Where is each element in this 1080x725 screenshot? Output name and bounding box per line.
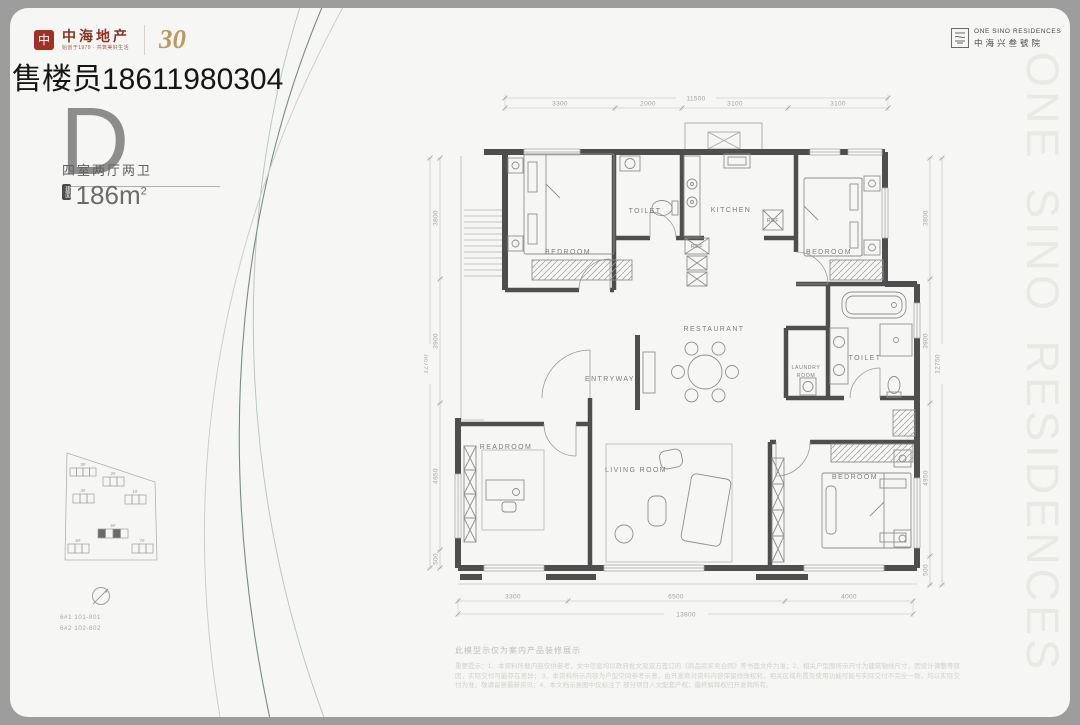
brand-logo-left: 中 中海地产 始创于1979 · 共筑美好生活 30 xyxy=(34,24,186,55)
dim-top-2: 2000 xyxy=(640,101,656,108)
residence-seal-icon xyxy=(951,28,969,48)
sales-watermark: 售楼员18611980304 xyxy=(12,54,283,98)
building-2-label: 2# xyxy=(110,471,116,476)
residence-name-en: ONE SINO RESIDENCES xyxy=(974,28,1061,35)
bed-2 xyxy=(804,176,880,256)
wardrobe-3 xyxy=(831,444,913,462)
room-label-ref1: REF xyxy=(767,218,779,224)
room-label-laundry1: LAUNDRY xyxy=(792,365,821,371)
site-plan: 3# 2# 4# 1# 6# 5# 7# xyxy=(58,452,170,570)
brand-tagline: 始创于1979 · 共筑美好生活 xyxy=(62,44,130,51)
dim-top-3: 3100 xyxy=(727,101,743,108)
room-label-bedroom2: BEDROOM xyxy=(806,249,852,256)
brand-seal-icon: 中 xyxy=(34,30,54,50)
area-sup: 2 xyxy=(141,185,147,197)
room-label-readroom: READROOM xyxy=(480,444,532,451)
terrace-piers xyxy=(460,574,808,580)
room-label-ref2: REF xyxy=(691,244,703,250)
building-2 xyxy=(103,477,124,486)
dim-left-2: 3900 xyxy=(433,333,440,349)
brochure-card: 中 中海地产 始创于1979 · 共筑美好生活 30 售楼员1861198030… xyxy=(10,8,1070,717)
brand-divider xyxy=(144,25,145,55)
dim-right-3: 4950 xyxy=(923,470,930,486)
disclaimer: 此模型示仅为案内产品装修展示 重要提示：1、本资料所载内容仅供参考，文中信息均以… xyxy=(455,645,960,691)
brand-logo-right: ONE SINO RESIDENCES 中海兴叁號院 xyxy=(951,28,1061,49)
dining-set xyxy=(672,342,739,402)
wardrobe-2 xyxy=(830,260,883,280)
side-watermark-text: ONE SINO RESIDENCES xyxy=(1018,52,1066,712)
dim-left-total: 12750 xyxy=(424,354,430,374)
anniversary-30-icon: 30 xyxy=(159,24,186,55)
building-5-label: 5# xyxy=(75,538,81,543)
unit-area: 建面 186m2 xyxy=(62,180,147,211)
wardrobe-1 xyxy=(532,260,632,280)
floor-plan: BEDROOM TOILET KITCHEN REF REF BEDROOM L… xyxy=(424,88,959,653)
building-4 xyxy=(73,494,94,503)
room-label-toilet2: TOILET xyxy=(849,355,882,362)
furniture xyxy=(464,154,915,562)
elevator-shaft xyxy=(685,123,762,153)
unit-note-2: 6#2 102-802 xyxy=(60,623,101,634)
building-1 xyxy=(125,495,146,504)
living-furniture xyxy=(606,444,732,562)
dim-right-4: 500 xyxy=(923,564,930,576)
room-label-restaurant: RESTAURANT xyxy=(684,326,745,333)
bath-fixtures xyxy=(830,292,912,397)
unit-notes: 6#1 101-801 6#2 102-802 xyxy=(60,612,101,634)
unit-note-1: 6#1 101-801 xyxy=(60,612,101,623)
disclaimer-title: 此模型示仅为案内产品装修展示 xyxy=(455,645,960,656)
area-badge: 建面 xyxy=(62,184,71,200)
dim-top-1: 3300 xyxy=(552,101,568,108)
entry-feature-wall xyxy=(635,335,640,410)
equipment-zone xyxy=(461,156,502,420)
room-label-kitchen: KITCHEN xyxy=(711,207,752,214)
readroom-furniture xyxy=(464,446,544,542)
disclaimer-line3: 部分项目人文配套产权；最终解释权归开发商所有。 xyxy=(623,682,773,689)
dim-bottom-3: 4000 xyxy=(841,594,857,601)
bed-1 xyxy=(508,154,614,254)
dim-bottom-2: 6500 xyxy=(668,594,684,601)
room-label-toilet1: TOILET xyxy=(629,208,662,215)
dim-left-1: 3800 xyxy=(433,210,440,226)
building-7-label: 7# xyxy=(139,538,145,543)
closet-corner xyxy=(893,410,915,436)
dim-bottom-total: 13800 xyxy=(676,612,696,619)
compass-north-icon xyxy=(88,583,114,609)
building-1-label: 1# xyxy=(132,489,138,494)
screenshot-stage: 中 中海地产 始创于1979 · 共筑美好生活 30 售楼员1861198030… xyxy=(0,0,1080,725)
dim-bottom-1: 3300 xyxy=(505,594,521,601)
residence-name-cn: 中海兴叁號院 xyxy=(974,37,1061,49)
dim-left-3: 4650 xyxy=(433,468,440,484)
room-label-bedroom3: BEDROOM xyxy=(832,474,878,481)
room-label-living: LIVING ROOM xyxy=(605,467,667,474)
dim-right-2: 3900 xyxy=(923,333,930,349)
washer xyxy=(800,378,816,395)
building-6 xyxy=(98,529,128,538)
dim-left-4: 500 xyxy=(433,553,440,565)
bed-3 xyxy=(822,450,911,548)
room-label-bedroom1: BEDROOM xyxy=(545,249,591,256)
brand-name: 中海地产 xyxy=(62,29,130,44)
building-6-label: 6# xyxy=(110,523,116,528)
area-value: 186m xyxy=(76,180,141,210)
entry-console xyxy=(643,352,655,393)
dim-top-4: 3100 xyxy=(830,101,846,108)
kitchen-fixtures xyxy=(684,154,750,236)
building-5 xyxy=(68,544,89,553)
building-3 xyxy=(70,468,96,476)
toilet1-fixtures xyxy=(620,156,678,216)
building-7 xyxy=(132,544,153,553)
room-label-laundry2: ROOM xyxy=(797,373,816,379)
building-3-label: 3# xyxy=(80,462,86,467)
building-4-label: 4# xyxy=(80,488,86,493)
dim-top-total: 11500 xyxy=(686,96,705,103)
room-label-entryway: ENTRYWAY xyxy=(585,376,635,383)
dim-right-1: 3800 xyxy=(923,210,930,226)
closet-strip xyxy=(772,458,784,562)
dim-right-total: 12750 xyxy=(935,354,942,374)
